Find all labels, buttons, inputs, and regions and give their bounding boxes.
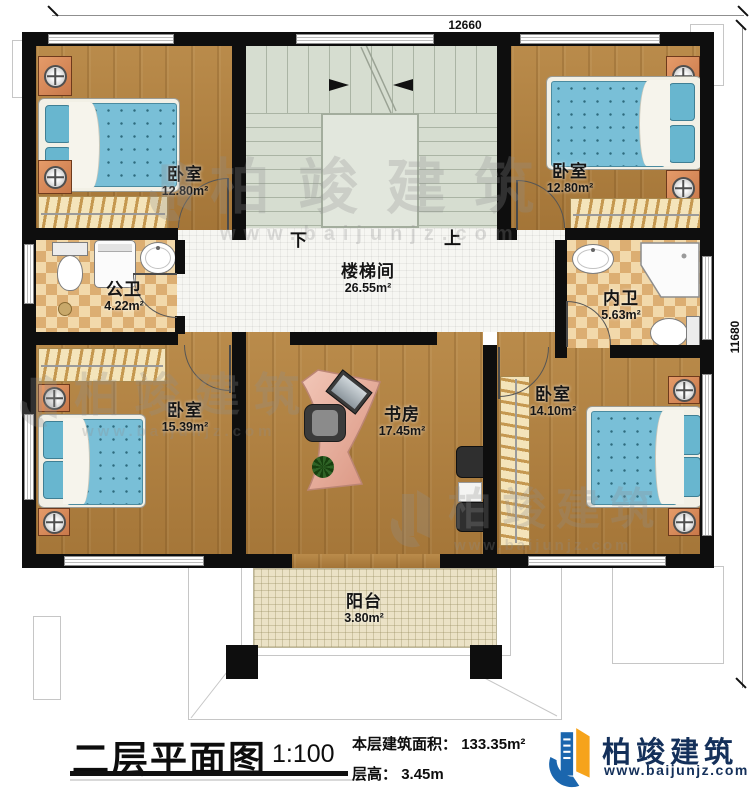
toilet-icon: [686, 316, 700, 348]
nightstand-icon: [38, 160, 72, 194]
room-area: 26.55m²: [318, 282, 418, 296]
brand-website: www.baijunjz.com: [604, 762, 749, 778]
window: [64, 556, 204, 566]
pillow-icon: [669, 125, 695, 163]
room-name: 楼梯间: [318, 263, 418, 282]
window: [528, 556, 666, 566]
wardrobe-icon: [38, 348, 166, 382]
room-label-bedroom-top-left: 卧室 12.80m²: [140, 166, 230, 198]
brand-logo-icon: [540, 726, 600, 790]
window: [24, 244, 34, 304]
tv-cabinet-icon: [456, 502, 484, 532]
door-leaf: [229, 345, 231, 393]
lamp-icon: [43, 387, 66, 410]
window: [702, 256, 712, 340]
room-area: 14.10m²: [508, 405, 598, 419]
blanket: [63, 418, 90, 504]
floor-drain-icon: [58, 302, 72, 316]
room-area: 3.80m²: [319, 612, 409, 626]
room-label-inner-bath: 内卫 5.63m²: [576, 290, 666, 322]
office-chair-icon: [304, 404, 346, 442]
double-bed-icon: [546, 76, 702, 170]
nightstand-icon: [38, 384, 70, 412]
stair-break-line-icon: [245, 45, 497, 145]
wall: [497, 45, 511, 240]
room-name: 公卫: [79, 281, 169, 300]
room-label-bedroom-top-right: 卧室 12.80m²: [525, 163, 615, 195]
nightstand-icon: [668, 508, 700, 536]
room-area: 17.45m²: [357, 425, 447, 439]
nightstand-icon: [38, 56, 72, 96]
sink-icon: [572, 244, 614, 274]
wall: [175, 240, 185, 274]
dimension-tick: [735, 677, 746, 688]
floor-plan-canvas: 12660 11680 下 上: [0, 0, 750, 794]
room-label-stairwell: 楼梯间 26.55m²: [318, 263, 418, 295]
wall: [483, 345, 497, 554]
room-name: 卧室: [525, 163, 615, 182]
floor-height-label: 层高：: [352, 766, 397, 783]
wall: [232, 45, 246, 240]
room-area: 4.22m²: [79, 300, 169, 314]
balcony-opening: [292, 554, 440, 568]
room-name: 卧室: [140, 402, 230, 421]
room-name: 书房: [357, 406, 447, 425]
wardrobe-icon: [38, 196, 168, 230]
dimension-line-top: [52, 15, 744, 16]
wall: [232, 332, 246, 554]
window: [48, 34, 174, 44]
window: [296, 34, 434, 44]
toilet-icon: [650, 318, 688, 348]
column: [226, 645, 258, 679]
floor-area-value: 133.35m²: [461, 736, 525, 753]
room-name: 卧室: [508, 386, 598, 405]
window: [702, 374, 712, 536]
wall: [22, 228, 178, 240]
floor-height-value: 3.45m: [401, 766, 444, 783]
wall: [497, 228, 517, 240]
lamp-icon: [673, 511, 696, 534]
window: [24, 414, 34, 500]
door-leaf: [566, 301, 568, 347]
dimension-label-width: 12660: [430, 18, 500, 32]
plant-icon: [312, 456, 334, 478]
nightstand-icon: [38, 508, 70, 536]
lamp-icon: [672, 177, 695, 200]
lamp-icon: [43, 511, 66, 534]
room-label-balcony: 阳台 3.80m²: [319, 593, 409, 625]
door-leaf: [498, 347, 500, 399]
stair-down-label: 下: [290, 226, 307, 251]
room-label-bedroom-bottom-left: 卧室 15.39m²: [140, 402, 230, 434]
double-bed-icon: [38, 414, 146, 508]
wall: [290, 332, 437, 345]
room-area: 12.80m²: [525, 182, 615, 196]
room-name: 内卫: [576, 290, 666, 309]
sink-icon: [140, 242, 176, 274]
room-label-public-bath: 公卫 4.22m²: [79, 281, 169, 313]
nightstand-icon: [668, 376, 700, 404]
dimension-tick: [735, 19, 746, 30]
tv-cabinet-icon: [458, 482, 482, 502]
floor-height-row: 层高： 3.45m: [352, 763, 444, 784]
eave-outline-left: [33, 616, 61, 700]
floor-area-label: 本层建筑面积：: [352, 736, 457, 753]
plan-scale: 1:100: [272, 740, 335, 769]
room-name: 阳台: [319, 593, 409, 612]
lamp-icon: [44, 65, 67, 88]
blanket: [655, 410, 684, 504]
room-label-bedroom-bottom-right: 卧室 14.10m²: [508, 386, 598, 418]
wall: [610, 345, 700, 358]
lamp-icon: [673, 379, 696, 402]
door-leaf: [133, 273, 177, 275]
room-name: 卧室: [140, 166, 230, 185]
title-underline-shadow: [70, 779, 360, 781]
wardrobe-icon: [570, 198, 702, 230]
tv-cabinet-icon: [456, 446, 484, 478]
dimension-label-height: 11680: [728, 297, 742, 377]
blanket: [69, 102, 100, 188]
stair-up-label: 上: [444, 224, 461, 249]
pillow-icon: [45, 105, 71, 143]
floor-area-row: 本层建筑面积： 133.35m²: [352, 733, 525, 754]
double-bed-icon: [586, 406, 702, 508]
pillow-icon: [669, 83, 695, 121]
toilet-icon: [52, 242, 88, 256]
room-area: 15.39m²: [140, 421, 230, 435]
title-underline: [70, 771, 348, 776]
window: [520, 34, 660, 44]
room-area: 12.80m²: [140, 185, 230, 199]
door-leaf: [516, 180, 518, 230]
wall: [565, 228, 700, 240]
eave-outline-right: [612, 566, 724, 664]
lamp-icon: [44, 166, 67, 189]
dimension-line-right: [742, 28, 743, 688]
blanket: [639, 80, 670, 166]
column: [470, 645, 502, 679]
room-label-study: 书房 17.45m²: [357, 406, 447, 438]
room-area: 5.63m²: [576, 309, 666, 323]
wall: [22, 332, 178, 345]
